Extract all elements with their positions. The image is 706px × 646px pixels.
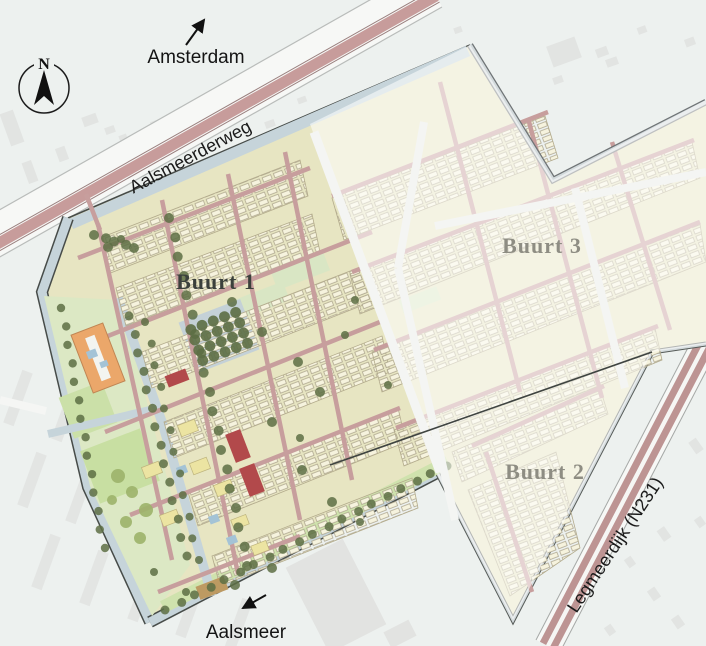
map-canvas: Buurt 1 Buurt 3 Buurt 2 Aalsmeerderweg L… — [0, 0, 706, 646]
city-label-aalsmeer: Aalsmeer — [206, 622, 287, 643]
site-plan-map: Buurt 1 Buurt 3 Buurt 2 Aalsmeerderweg L… — [0, 0, 706, 646]
district-label-buurt3: Buurt 3 — [502, 233, 582, 258]
city-label-amsterdam: Amsterdam — [147, 47, 244, 68]
district-label-buurt2: Buurt 2 — [505, 459, 585, 484]
district-label-buurt1: Buurt 1 — [176, 269, 256, 294]
compass-north-label: N — [38, 56, 50, 73]
